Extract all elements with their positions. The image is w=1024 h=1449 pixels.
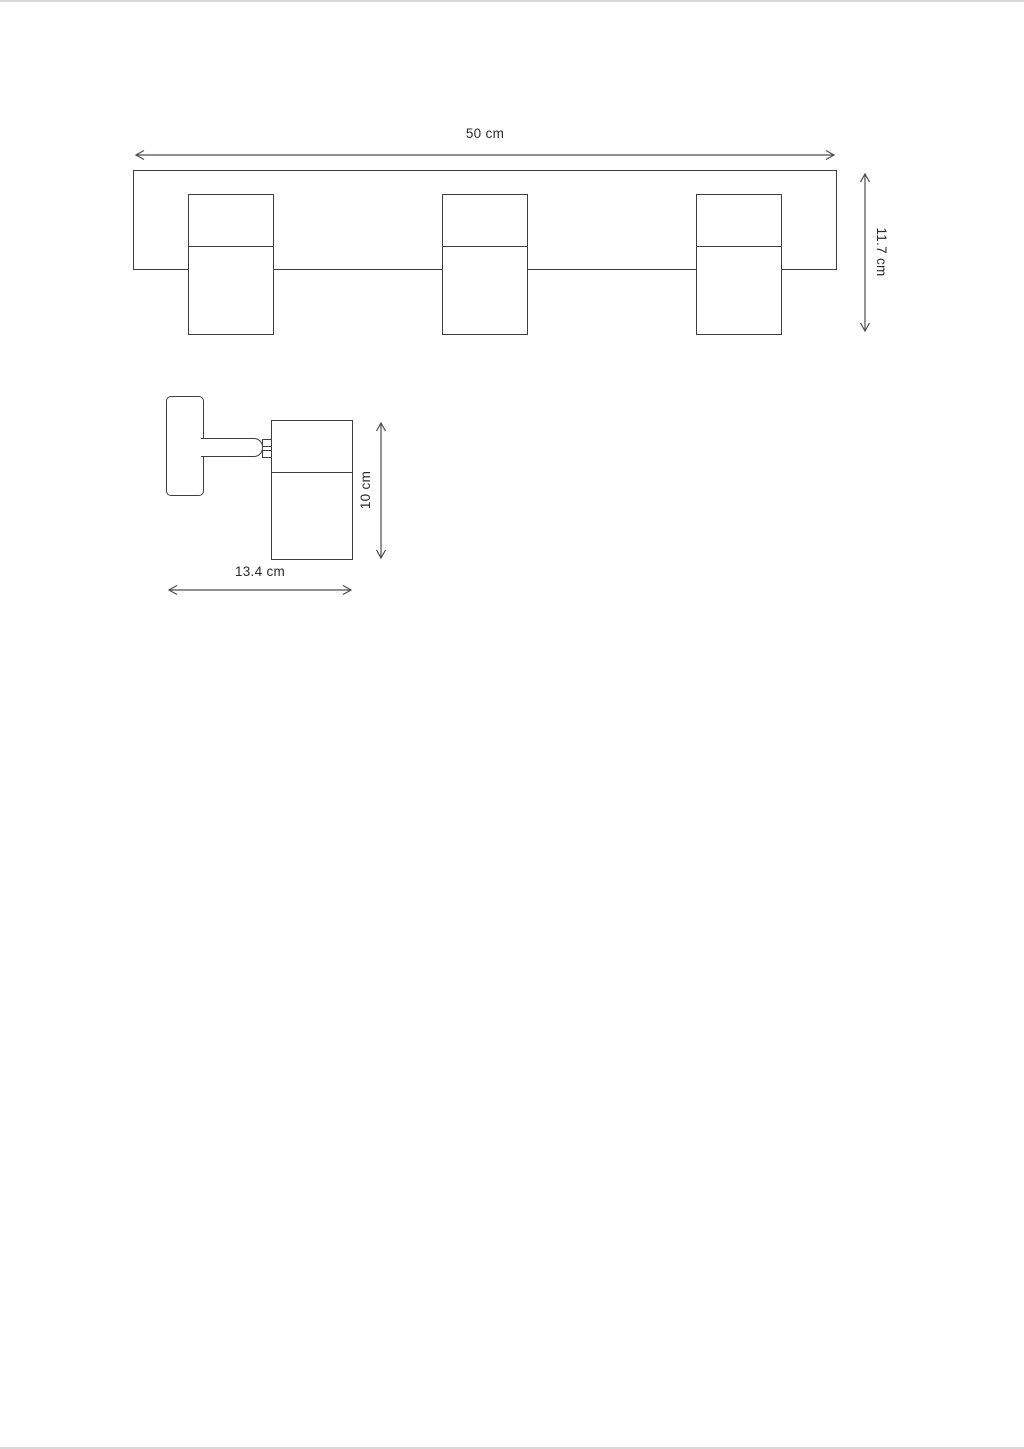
wall-plate [166,396,204,496]
side-spot-head [271,420,353,560]
dimension-drawing-canvas: 50 cm 11.7 cm [0,0,1024,1449]
front-height-dimension-label: 11.7 cm [873,217,889,287]
spot-head-1 [188,194,274,335]
spot-head-3 [696,194,782,335]
side-width-dimension-label: 13.4 cm [166,564,354,579]
spot-arm [201,438,263,457]
spot-head-2-divider [443,246,527,247]
front-height-arrow-icon [858,171,872,334]
front-width-arrow-icon [133,148,837,162]
front-width-dimension-label: 50 cm [133,126,837,141]
side-height-dimension-label: 10 cm [358,460,374,520]
side-width-arrow-icon [166,583,354,597]
side-spot-head-divider [272,472,352,473]
spot-head-3-divider [697,246,781,247]
spot-head-1-divider [189,246,273,247]
spot-head-2 [442,194,528,335]
side-height-arrow-icon [374,420,388,561]
